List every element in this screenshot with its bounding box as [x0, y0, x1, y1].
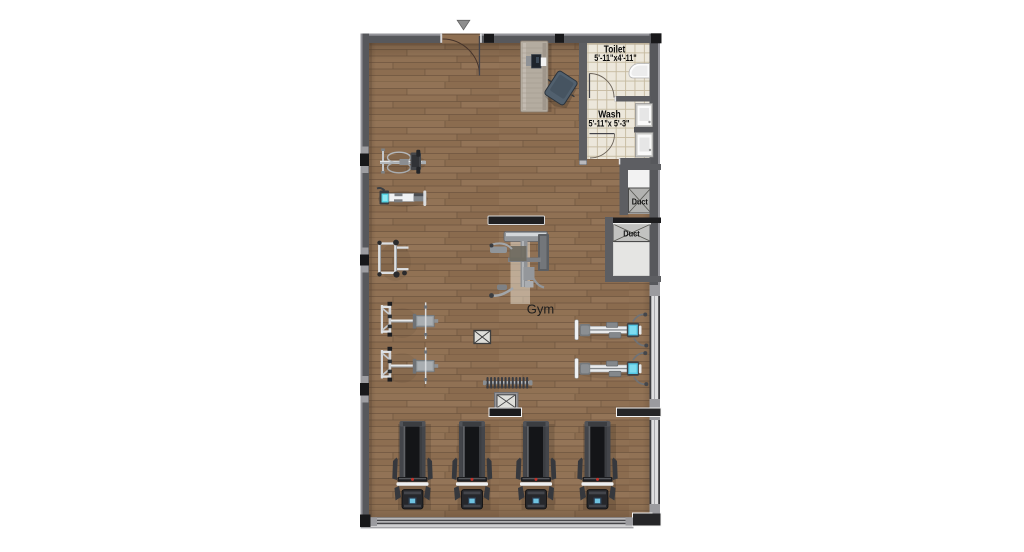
svg-text:5'-11"x 5'-3": 5'-11"x 5'-3": [589, 119, 630, 129]
svg-text:Gym: Gym: [527, 302, 554, 317]
svg-text:Duct: Duct: [632, 197, 648, 206]
svg-text:Duct: Duct: [623, 229, 640, 239]
svg-text:5'-11"x4'-11": 5'-11"x4'-11": [594, 53, 637, 63]
